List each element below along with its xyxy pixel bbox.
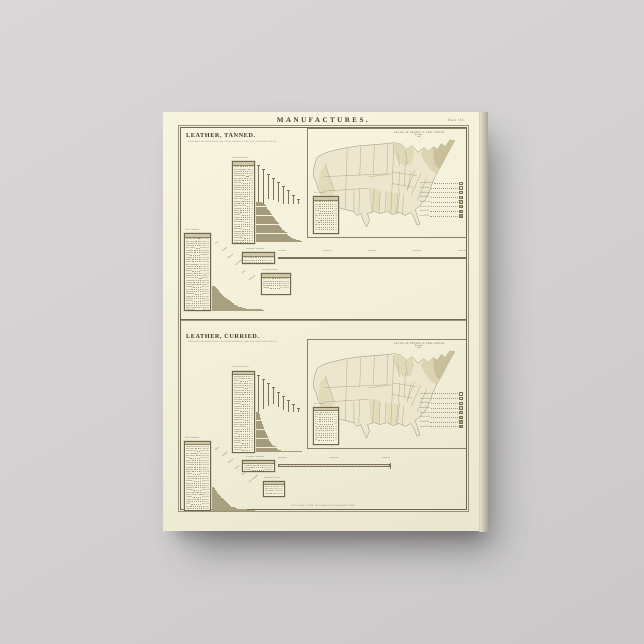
value-marker	[288, 401, 289, 412]
row-leader	[240, 415, 250, 416]
legend-row: Over $1.50	[420, 424, 463, 429]
scale-tick-labels: 10,000,00020,000,00030,000,00040,000,000…	[278, 250, 466, 253]
bar-state-label: Ohio	[242, 270, 246, 274]
row-leader	[199, 278, 201, 279]
row-label: Ky.	[315, 439, 318, 441]
per-capita-table-title: Value per Capita.	[232, 366, 249, 368]
value-marker	[268, 384, 269, 406]
row-leader	[318, 424, 333, 425]
scale-tick-labels: 10,000,00020,000,00030,000,000	[278, 457, 390, 460]
legend-leader	[431, 412, 458, 413]
legend-leader	[431, 398, 458, 399]
map-legend: Less than 10 cts.10 to 20 cts.20 to 40 c…	[420, 392, 463, 437]
row-leader	[194, 252, 199, 253]
legend-label: Over $1.50	[420, 215, 429, 217]
legend-swatch	[459, 416, 464, 419]
legend-swatch	[459, 196, 464, 199]
row-leader	[319, 426, 334, 427]
total-products-bar-chart	[212, 286, 264, 311]
row-leader	[252, 262, 262, 263]
row-leader	[242, 401, 250, 402]
row-leader	[247, 206, 250, 207]
row-leader	[319, 435, 334, 436]
row-leader	[318, 208, 333, 209]
per-capita-bar-chart	[256, 412, 302, 454]
row-leader	[252, 470, 263, 471]
row-label: All Other	[244, 262, 252, 264]
row-value: .47	[335, 439, 338, 441]
scale-tick-label: 20,000,000	[323, 250, 332, 253]
row-leader	[243, 422, 250, 423]
row-leader	[318, 227, 334, 228]
legend-leader	[434, 393, 457, 394]
row-leader	[320, 412, 332, 413]
legend-leader	[431, 192, 458, 193]
row-leader	[197, 284, 201, 285]
legend-swatch	[459, 191, 464, 194]
legend-label: 80 cts. to $1.	[420, 206, 430, 208]
row-leader	[244, 383, 248, 384]
row-leader	[193, 287, 201, 288]
scale-ruler-bar	[278, 257, 466, 260]
row-leader	[195, 478, 201, 479]
row-leader	[243, 229, 250, 230]
value-marker	[263, 380, 264, 409]
legend-label: 60 to 80 cts.	[420, 412, 430, 414]
row-leader	[246, 176, 248, 177]
legend-leader	[431, 417, 457, 418]
map-year: 1880.	[380, 136, 458, 138]
row-leader	[192, 261, 200, 262]
row-leader	[319, 218, 334, 219]
value-marker	[258, 376, 259, 412]
scale-tick-label: 10,000,000	[278, 250, 287, 253]
row-leader	[240, 411, 250, 412]
legend-label: 10 to 20 cts.	[420, 398, 430, 400]
row-leader	[319, 206, 333, 207]
legend-label: Over $1.50	[420, 426, 429, 428]
row-leader	[190, 458, 199, 459]
value-marker	[283, 397, 284, 410]
legend-leader	[431, 188, 458, 189]
row-leader	[242, 390, 250, 391]
per-capita-table-title: Value per Capita.	[232, 157, 249, 159]
row-leader	[194, 462, 199, 463]
map-legend: Less than 10 cts.10 to 20 cts.20 to 40 c…	[420, 181, 463, 226]
plate-title: MANUFACTURES.	[180, 116, 467, 124]
total-products-bar-chart	[212, 487, 264, 511]
row-leader	[245, 222, 250, 223]
table-row: Alabama$52,130	[185, 510, 210, 511]
bar-state-label: Missouri	[228, 254, 235, 260]
row-leader	[239, 224, 250, 225]
row-leader	[319, 224, 334, 225]
row-leader	[319, 419, 333, 420]
value-marker	[278, 392, 279, 407]
row-leader	[238, 226, 250, 227]
legend-row: Over $1.50	[420, 214, 463, 219]
value-marker	[273, 388, 274, 403]
legend-label: 60 to 80 cts.	[420, 201, 430, 203]
row-leader	[194, 273, 200, 274]
legend-label: 80 cts. to $1.	[420, 416, 430, 418]
row-value: .52	[335, 229, 338, 231]
row-leader	[242, 231, 250, 232]
row-leader	[196, 455, 200, 456]
row-leader	[238, 436, 250, 437]
legend-leader	[434, 183, 457, 184]
principal-products-box: Curried Leather$30,214,410Finished$18,10…	[242, 460, 275, 472]
row-leader	[242, 404, 250, 405]
corner-table-title: Per Capita.	[314, 403, 325, 405]
row-leader	[247, 235, 250, 236]
table-row: Salem$1,412,304	[264, 493, 284, 495]
row-leader	[194, 469, 199, 470]
value-droplines	[256, 374, 302, 412]
legend-leader	[430, 216, 458, 217]
row-leader	[196, 280, 201, 281]
row-leader	[319, 201, 333, 202]
scale-tick-label: 40,000,000	[413, 250, 422, 253]
legend-swatch	[459, 411, 464, 414]
row-leader	[241, 192, 250, 193]
section-leather-curried: LEATHER, CURRIED. SHOWING FOR EACH STATE…	[181, 321, 466, 511]
table-row: Ky..47	[314, 439, 338, 441]
legend-label: 20 to 40 cts.	[420, 402, 430, 404]
legend-swatch	[459, 397, 464, 400]
row-leader	[197, 492, 201, 493]
scale-title: Principal Products.	[246, 248, 265, 250]
row-leader	[242, 180, 250, 181]
legend-swatch	[459, 186, 464, 189]
row-leader	[244, 238, 250, 239]
legend-swatch	[459, 214, 464, 217]
value-marker	[268, 174, 269, 199]
map-corner-table: Me.2.41N.H.2.10Wis.1.64Pa.1.38Mass.1.21N…	[313, 196, 339, 234]
scale-tick-label: 30,000,000	[368, 250, 377, 253]
row-leader	[190, 255, 199, 256]
row-leader	[197, 238, 198, 239]
row-leader	[242, 201, 250, 202]
row-leader	[244, 178, 248, 179]
legend-label: $1 to $1.50	[420, 421, 429, 423]
bar-state-label: Missouri	[228, 458, 235, 464]
row-label: Chicago	[263, 287, 270, 289]
row-leader	[269, 283, 279, 284]
scale-tick-label: 20,000,000	[330, 457, 339, 460]
row-leader	[320, 437, 334, 438]
row-leader	[245, 173, 248, 174]
row-leader	[239, 434, 250, 435]
value-droplines	[256, 164, 302, 204]
legend-swatch	[459, 392, 464, 395]
per-capita-table: Maine$2.41New Hampshire$2.10Wisconsin$1.…	[232, 161, 255, 244]
bar-state-label: Georgia	[221, 247, 227, 252]
row-leader	[257, 465, 262, 466]
row-leader	[271, 285, 279, 286]
row-leader	[318, 440, 334, 441]
row-leader	[190, 291, 201, 292]
bar-state-label: Vermont	[221, 452, 227, 458]
principal-products-scale: Principal Products. Sole Leather$52,240,…	[242, 248, 466, 266]
row-leader	[271, 486, 273, 487]
bar-state-label: Wisconsin	[249, 274, 256, 280]
map-corner-table: Mass.15.72N.H.3.10Me.2.24N.J.1.92N.Y.1.8…	[313, 407, 339, 445]
row-leader	[241, 429, 250, 430]
row-leader	[199, 307, 202, 308]
row-leader	[195, 464, 200, 465]
row-leader	[194, 305, 201, 306]
row-leader	[251, 467, 262, 468]
row-leader	[243, 408, 250, 409]
row-leader	[242, 215, 250, 216]
row-leader	[193, 282, 201, 283]
legend-leader	[431, 408, 458, 409]
row-leader	[238, 203, 250, 204]
corner-table-title: Per Capita.	[314, 192, 325, 194]
legend-leader	[431, 403, 458, 404]
table-row: Cal..52	[314, 229, 338, 231]
row-leader	[195, 294, 201, 295]
value-marker	[273, 179, 274, 201]
row-leader	[192, 296, 201, 297]
row-leader	[194, 268, 199, 269]
value-bar	[256, 451, 302, 452]
row-value: $1,412,304	[274, 493, 283, 495]
legend-leader	[430, 426, 458, 427]
row-leader	[244, 196, 250, 197]
row-value: $20,986,507	[263, 262, 273, 264]
row-leader	[241, 417, 250, 418]
legend-label: 20 to 40 cts.	[420, 192, 430, 194]
scale-tick-label: 50,000,000	[457, 250, 466, 253]
row-leader	[319, 430, 334, 431]
value-marker	[293, 405, 294, 412]
row-leader	[194, 298, 201, 299]
row-leader	[197, 499, 201, 500]
legend-swatch	[459, 425, 464, 428]
legend-label: 40 to 60 cts.	[420, 196, 430, 198]
value-marker	[263, 170, 264, 204]
scale-title: Principal Products.	[246, 456, 265, 458]
table-row: All Other$20,986,507	[243, 262, 274, 264]
map-year: 1880.	[380, 347, 458, 349]
row-leader	[242, 413, 250, 414]
row-leader	[242, 189, 250, 190]
per-capita-bar-chart	[256, 202, 302, 244]
row-leader	[272, 278, 280, 279]
total-products-table: Pennsylvania$24,173,402New York$22,261,5…	[184, 233, 211, 311]
row-leader	[319, 213, 333, 214]
section-heading: LEATHER, TANNED.	[186, 132, 256, 139]
principal-products-scale: Principal Products. Curried Leather$30,2…	[242, 456, 392, 474]
row-leader	[242, 185, 250, 186]
per-capita-table: Massachusetts$15.72New Hampshire$3.10Mai…	[232, 371, 255, 453]
row-leader	[319, 204, 333, 205]
legend-leader	[431, 197, 458, 198]
us-map-panel: VALUE OF PRODUCT, PER CAPITA By States. …	[307, 128, 466, 238]
legend-swatch	[459, 402, 464, 405]
row-leader	[245, 388, 248, 389]
row-label: All Other	[244, 469, 252, 471]
canvas-print: MANUFACTURES. Plate 153. LEATHER, TANNED…	[163, 112, 479, 531]
row-leader	[194, 481, 201, 482]
row-leader	[194, 301, 201, 302]
row-leader	[192, 483, 201, 484]
row-leader	[247, 427, 250, 428]
row-label: Cal.	[315, 229, 318, 231]
row-leader	[319, 215, 334, 216]
row-leader	[241, 406, 250, 407]
scale-tick-label: 30,000,000	[381, 457, 390, 460]
atlas-plate: MANUFACTURES. Plate 153. LEATHER, TANNED…	[163, 112, 479, 531]
row-leader	[320, 428, 334, 429]
principal-cities-table: Boston$9,412,308New York$5,211,417Philad…	[263, 481, 285, 497]
scale-ruler-bar	[278, 464, 390, 467]
row-leader	[242, 394, 250, 395]
bar-state-label: Iowa	[214, 241, 218, 245]
row-leader	[245, 420, 250, 421]
principal-cities-table: New York$8,214,311Philadelphia$6,102,208…	[261, 273, 291, 295]
row-leader	[193, 257, 200, 258]
row-leader	[318, 222, 334, 223]
row-leader	[192, 501, 201, 502]
row-leader	[194, 250, 199, 251]
row-leader	[241, 217, 250, 218]
row-label: Salem	[265, 493, 270, 495]
legend-label: 10 to 20 cts.	[420, 187, 430, 189]
value-bar	[256, 241, 302, 242]
row-leader	[273, 281, 279, 282]
row-leader	[245, 199, 250, 200]
row-leader	[243, 399, 250, 400]
row-leader	[193, 497, 201, 498]
row-leader	[320, 220, 334, 221]
row-leader	[241, 187, 250, 188]
row-leader	[256, 260, 262, 261]
row-value: $9,840,217	[264, 469, 273, 471]
row-leader	[240, 212, 250, 213]
principal-products-box: Sole Leather$52,240,301Upper Leather$31,…	[242, 252, 275, 264]
row-leader	[240, 210, 250, 211]
bar-state-label: New Hampshire	[249, 473, 258, 482]
legend-swatch	[459, 200, 464, 203]
row-leader	[192, 471, 199, 472]
principal-cities-title: Principal Cities.	[264, 477, 280, 479]
row-leader	[197, 451, 199, 452]
legend-label: Less than 10 cts.	[420, 393, 433, 395]
row-leader	[192, 259, 199, 260]
section-subheading: SHOWING FOR EACH STATE THE TOTAL PRODUCT…	[188, 341, 277, 343]
row-leader	[319, 229, 334, 230]
wall-background: MANUFACTURES. Plate 153. LEATHER, TANNED…	[0, 0, 644, 644]
row-leader	[195, 448, 199, 449]
total-products-table: Massachusetts$28,514,601New York$17,302,…	[184, 441, 211, 511]
row-leader	[191, 289, 201, 290]
legend-label: 40 to 60 cts.	[420, 407, 430, 409]
row-leader	[319, 414, 333, 415]
row-leader	[243, 171, 248, 172]
canvas-side-edge	[479, 112, 488, 532]
row-leader	[192, 303, 201, 304]
legend-label: $1 to $1.50	[420, 210, 429, 212]
legend-label: Less than 10 cts.	[420, 182, 433, 184]
legend-leader	[430, 422, 457, 423]
row-leader	[194, 467, 199, 468]
section-subheading: SHOWING FOR EACH STATE THE TOTAL PRODUCT…	[188, 141, 277, 143]
row-leader	[243, 194, 250, 195]
row-leader	[244, 392, 250, 393]
scale-tick-label: 10,000,000	[278, 457, 287, 460]
row-leader	[196, 310, 202, 311]
row-leader	[238, 397, 250, 398]
legend-swatch	[459, 210, 464, 213]
bar-state-label: Illinois	[235, 465, 240, 470]
row-value: $1,754,220	[280, 287, 289, 289]
row-leader	[240, 431, 250, 432]
plate-border-frame: LEATHER, TANNED. SHOWING FOR EACH STATE …	[180, 127, 467, 510]
value-marker	[258, 166, 259, 202]
row-leader	[242, 440, 250, 441]
legend-swatch	[459, 406, 464, 409]
row-leader	[195, 266, 200, 267]
row-leader	[319, 421, 333, 422]
row-leader	[199, 494, 201, 495]
map-title-block: VALUE OF PRODUCT, PER CAPITA By States. …	[380, 342, 458, 349]
row-leader	[243, 385, 248, 386]
value-marker	[278, 183, 279, 202]
row-leader	[195, 508, 202, 509]
publisher-imprint: COPYRIGHT, 1883, BY CHARLES SCRIBNER'S S…	[181, 505, 466, 507]
row-leader	[240, 166, 248, 167]
row-leader	[195, 487, 201, 488]
row-leader	[195, 245, 200, 246]
row-leader	[242, 233, 250, 234]
legend-leader	[431, 206, 457, 207]
row-leader	[319, 433, 334, 434]
section-heading: LEATHER, CURRIED.	[186, 333, 260, 340]
row-leader	[194, 485, 201, 486]
row-leader	[243, 183, 250, 184]
row-leader	[319, 417, 333, 418]
table-row: All Other$9,840,217	[243, 469, 274, 471]
row-leader	[242, 443, 250, 444]
row-leader	[192, 460, 200, 461]
row-leader	[195, 275, 200, 276]
us-map-panel: VALUE OF PRODUCT, PER CAPITA By States. …	[307, 339, 466, 449]
bar-state-label: Rhode Island	[214, 447, 223, 452]
section-leather-tanned: LEATHER, TANNED. SHOWING FOR EACH STATE …	[181, 128, 466, 319]
legend-leader	[430, 211, 457, 212]
total-products-table-title: Total Products.	[185, 229, 200, 231]
row-leader	[240, 381, 248, 382]
row-leader	[243, 438, 250, 439]
value-bar	[212, 310, 264, 311]
row-leader	[270, 288, 279, 289]
row-leader	[193, 490, 201, 491]
plate-number: Plate 153.	[448, 118, 465, 122]
row-leader	[196, 248, 200, 249]
legend-swatch	[459, 420, 464, 423]
row-leader	[193, 474, 200, 475]
row-leader	[243, 208, 250, 209]
row-leader	[192, 271, 199, 272]
row-leader	[255, 257, 263, 258]
row-leader	[245, 424, 250, 425]
legend-swatch	[459, 205, 464, 208]
row-leader	[240, 219, 250, 220]
row-leader	[270, 493, 273, 494]
